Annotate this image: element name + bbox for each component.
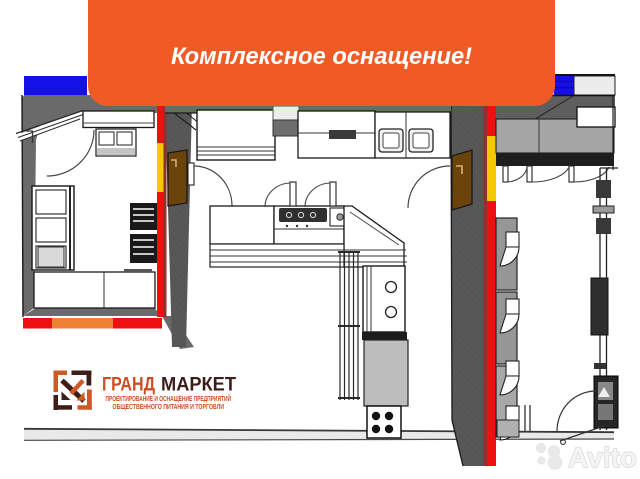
svg-text:ГРАНД: ГРАНД — [102, 373, 155, 395]
svg-text:Avito: Avito — [568, 442, 637, 473]
svg-text:МАРКЕТ: МАРКЕТ — [161, 373, 236, 395]
svg-text:ОБЩЕСТВЕННОГО ПИТАНИЯ И ТОРГОВ: ОБЩЕСТВЕННОГО ПИТАНИЯ И ТОРГОВЛИ — [113, 402, 225, 411]
